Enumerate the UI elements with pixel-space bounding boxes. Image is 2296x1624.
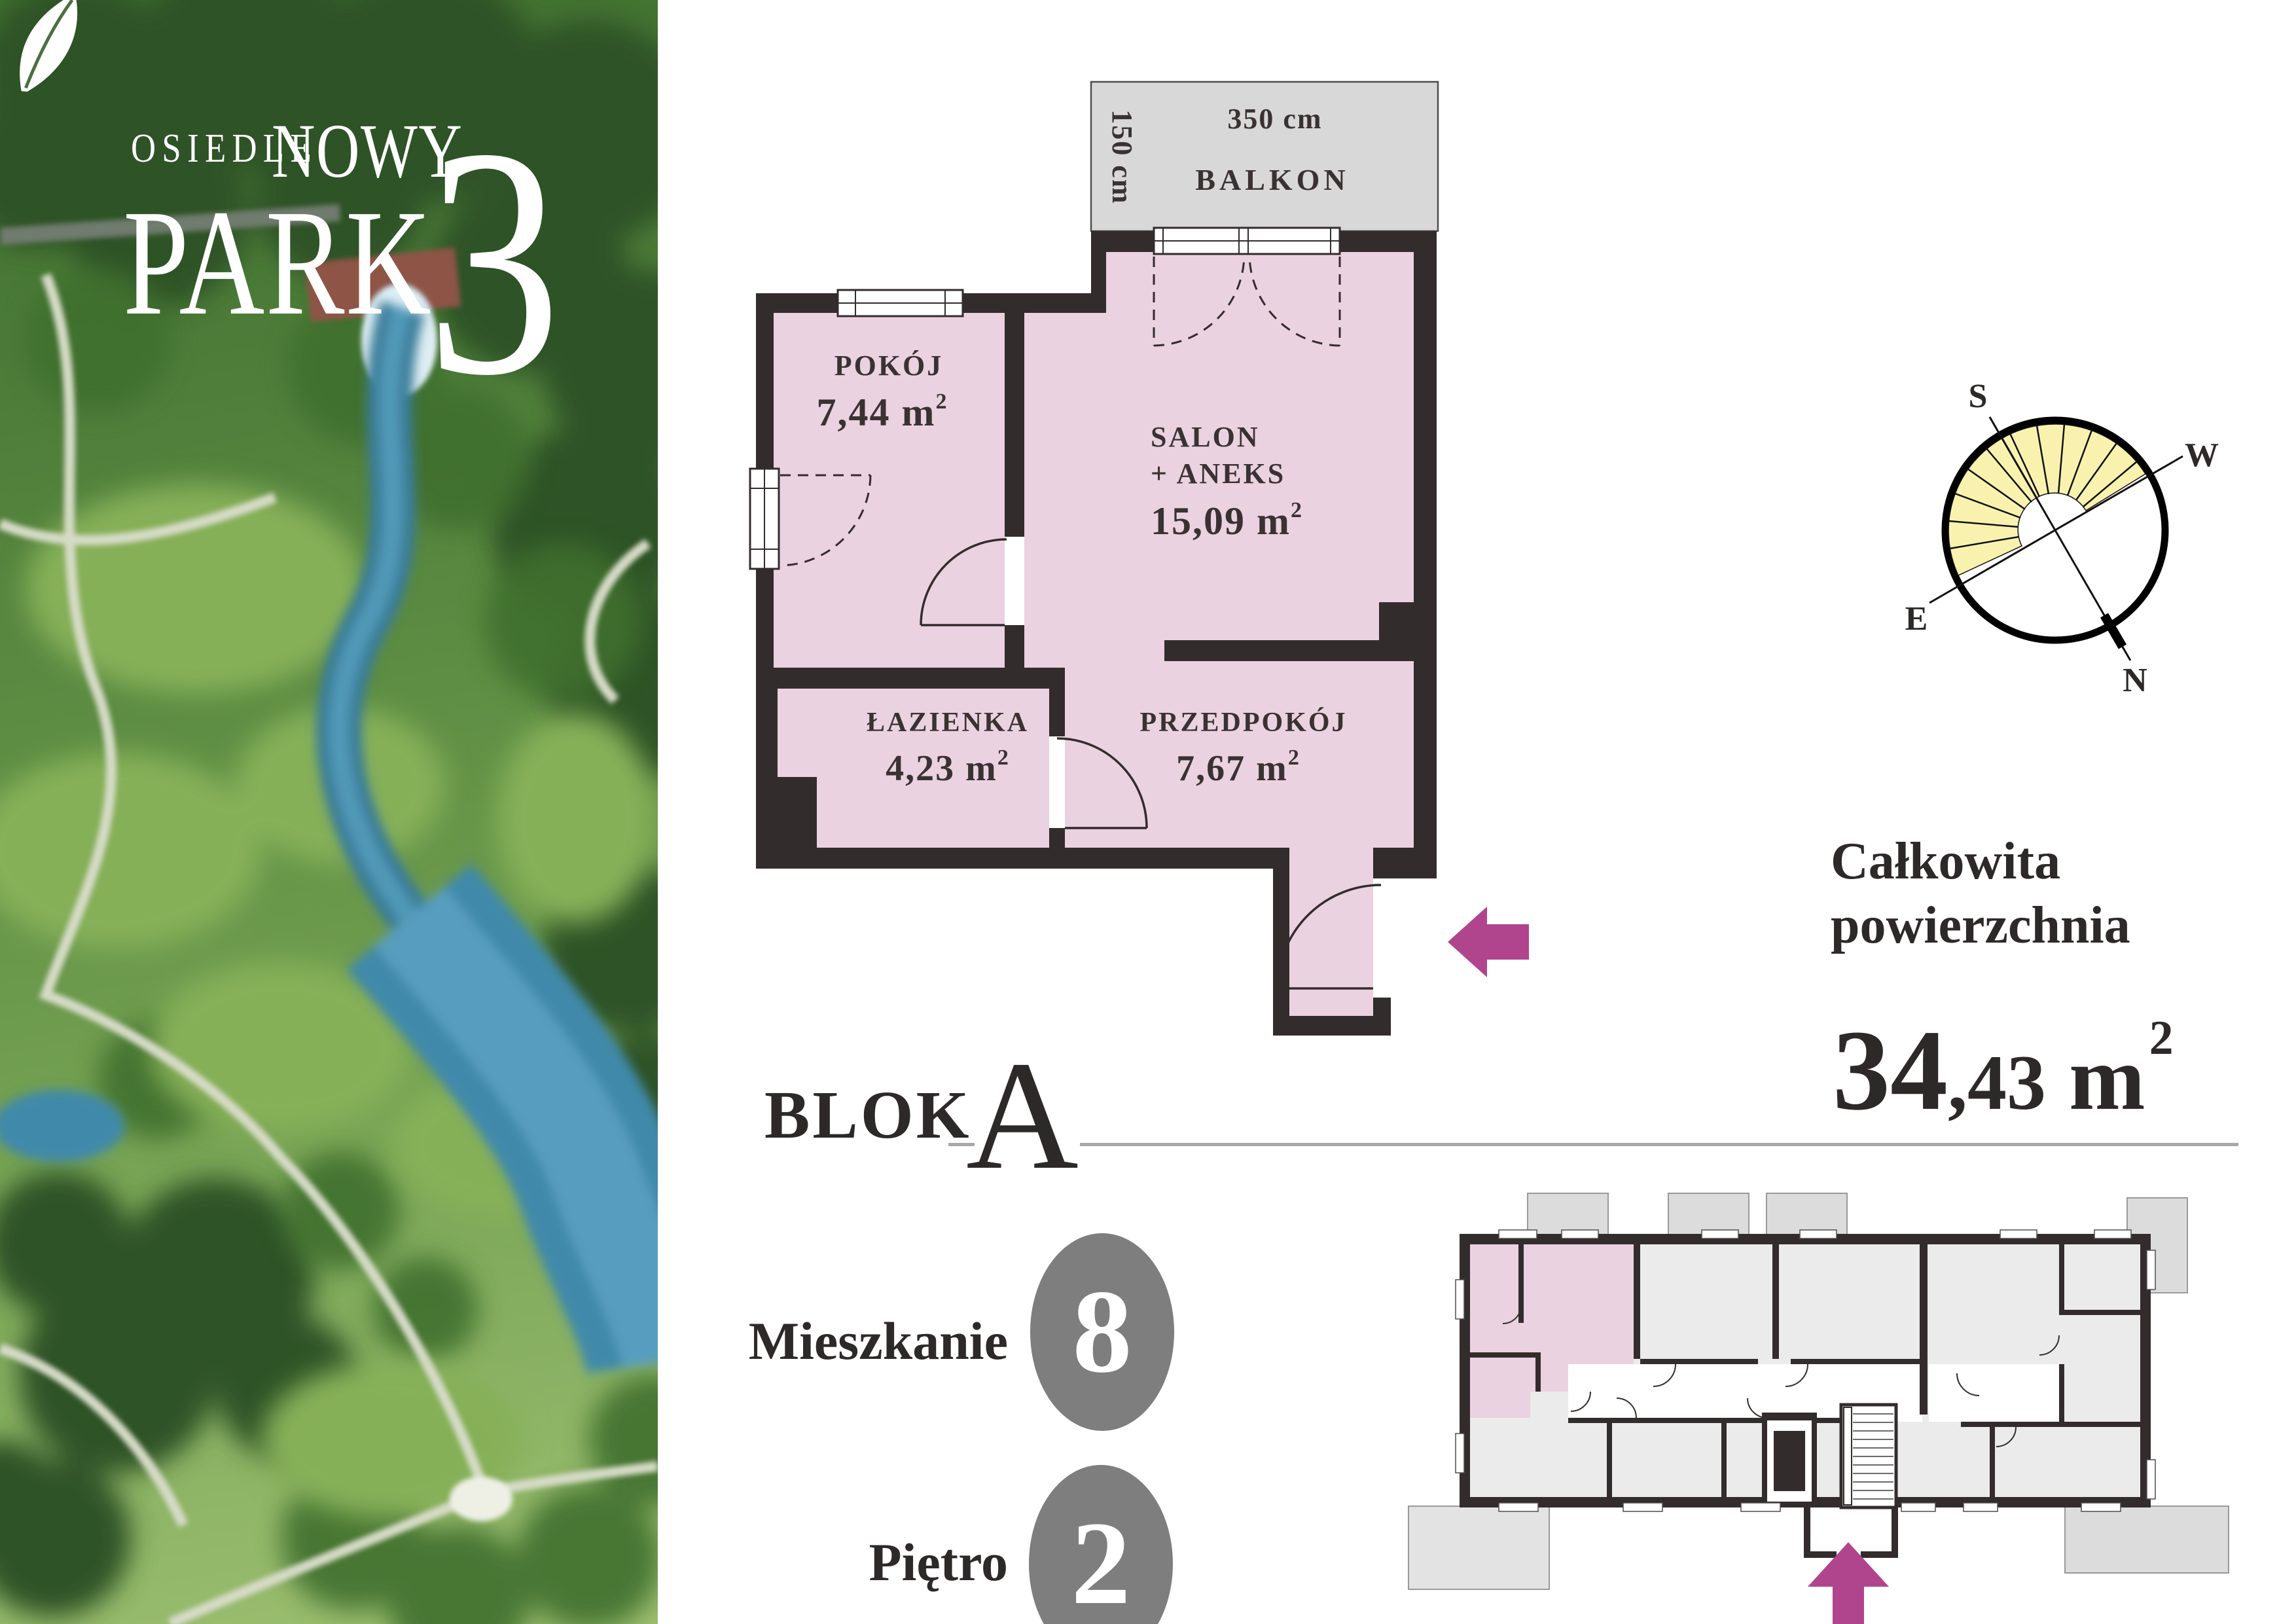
- total-area-dec: ,43: [1948, 1039, 2046, 1126]
- room-salon-area: 15,09 m2: [1151, 498, 1303, 543]
- room-przedpokoj-label: PRZEDPOKÓJ: [1139, 707, 1347, 738]
- room-pokoj-label: POKÓJ: [834, 350, 944, 382]
- apartment-number-badge: 8: [1030, 1233, 1174, 1431]
- logo-name-bottom: PARK: [123, 187, 432, 339]
- aerial-park-photo: OSIEDLE NOWY PARK 3: [0, 0, 658, 1624]
- leaf-icon: [0, 0, 111, 100]
- entrance-arrow: [1448, 907, 1529, 977]
- balcony-width-label: 350 cm: [1227, 103, 1322, 135]
- apartment-label: Mieszkanie: [681, 1314, 1008, 1368]
- room-pokoj-area: 7,44 m2: [817, 389, 948, 434]
- rule-left: [948, 1143, 975, 1146]
- logo-number: 3: [427, 98, 561, 425]
- room-lazienka-label: ŁAZIENKA: [867, 708, 1029, 738]
- building-overview-plan: [1407, 1139, 2296, 1624]
- floor-label: Piętro: [681, 1536, 1008, 1589]
- total-area-value: 34,43 m2: [1833, 1013, 2170, 1128]
- balcony-label: BALKON: [1195, 163, 1349, 196]
- total-area-label: Całkowita powierzchnia: [1831, 830, 2130, 958]
- apartment-number: 8: [1030, 1233, 1174, 1431]
- total-area-label-line1: Całkowita: [1831, 830, 2130, 894]
- block-value: A: [966, 1038, 1079, 1194]
- total-area-int: 34: [1833, 1007, 1948, 1134]
- room-lazienka-area: 4,23 m2: [886, 746, 1010, 789]
- compass-rose: S W E N: [1885, 353, 2251, 720]
- compass-south: S: [1969, 378, 1988, 415]
- elevator: [1762, 1413, 1817, 1507]
- compass-east: E: [1905, 600, 1928, 638]
- apartment-floor-plan: 350 cm BALKON 150 cm: [740, 39, 1545, 1060]
- total-area-sup: 2: [2149, 1011, 2174, 1065]
- brochure-page: OSIEDLE NOWY PARK 3 350 cm BALKON 150 cm: [0, 0, 2296, 1624]
- block-label: BLOK: [764, 1081, 972, 1149]
- room-salon-label: SALON: [1151, 421, 1260, 453]
- total-area-unit: m: [2046, 1028, 2145, 1129]
- floor-number: 2: [1029, 1465, 1173, 1624]
- plaza-circle: [450, 1477, 512, 1521]
- room-przedpokoj-area: 7,67 m2: [1176, 746, 1300, 789]
- balcony-depth-label: 150 cm: [1106, 109, 1138, 204]
- room-salon-label2: + ANEKS: [1151, 458, 1285, 490]
- balcony: 350 cm BALKON 150 cm: [1091, 82, 1438, 231]
- logo: OSIEDLE NOWY PARK 3: [0, 0, 658, 406]
- total-area-label-line2: powierzchnia: [1831, 894, 2130, 958]
- floor-number-badge: 2: [1029, 1465, 1173, 1624]
- compass-north: N: [2123, 662, 2147, 699]
- compass-west: W: [2185, 437, 2219, 474]
- stairwell: [1841, 1405, 1896, 1507]
